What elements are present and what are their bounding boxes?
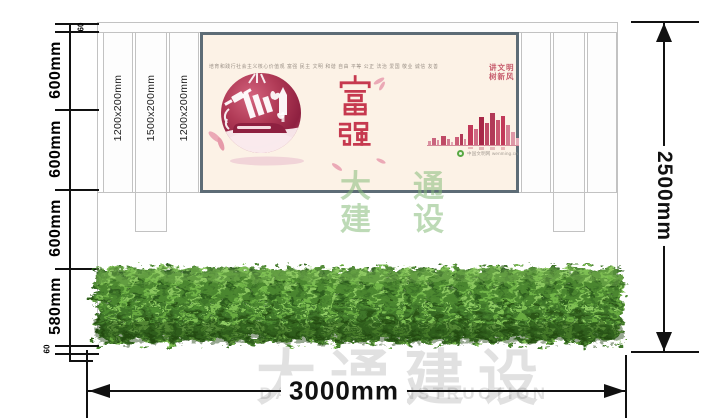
dimension-arrow-left — [89, 384, 110, 398]
segment-label-580: 580mm — [47, 277, 65, 335]
caption-text: 中国文明网 wenming.cn — [467, 151, 518, 157]
wall-bottom-line-right — [519, 192, 618, 193]
total-width-label: 3000mm — [281, 376, 407, 407]
fuqiang-characters — [331, 75, 387, 193]
dim-tick — [55, 109, 99, 111]
dim-tick — [55, 345, 99, 347]
panel-post-right-3 — [587, 32, 617, 193]
dimension-arrow-down — [656, 332, 672, 351]
dimension-arrow-up — [656, 23, 672, 42]
right-dim-bottom-tick — [631, 351, 699, 353]
hedge-image — [84, 258, 634, 356]
segment-label-600-1: 600mm — [47, 41, 65, 99]
core-values-text: 培育和践行社会主义核心价值观 富强 民主 文明 和谐 自由 平等 公正 法治 爱… — [209, 63, 439, 70]
dim-tick — [55, 353, 99, 355]
wall-bottom-line-left — [97, 192, 200, 193]
signage-design-drawing: { "dimensions": { "left_segments": ["60"… — [0, 0, 720, 420]
dim-tick — [55, 189, 99, 191]
panel-size-label-2: 1500x200mm — [145, 75, 157, 142]
poster-frame: 培育和践行社会主义核心价值观 富强 民主 文明 和谐 自由 平等 公正 法治 爱… — [200, 32, 519, 193]
slogan-text: 讲文明 树新风 — [489, 64, 515, 81]
dimension-arrow-right — [604, 384, 625, 398]
left-dimension-bend — [69, 360, 93, 362]
total-height-label: 2500mm — [650, 146, 678, 246]
bottom-dim-ext-left — [86, 350, 88, 418]
panel-post-right-2 — [553, 32, 585, 232]
left-dimension-line — [69, 23, 71, 362]
segment-label-600-2: 600mm — [47, 120, 65, 178]
panel-size-label-3: 1200x200mm — [178, 75, 190, 142]
skyline-graphic — [427, 105, 519, 151]
emblem-shadow — [227, 155, 307, 167]
caption-row: 中国文明网 wenming.cn — [457, 150, 518, 157]
segment-label-600-3: 600mm — [47, 199, 65, 257]
bottom-dim-ext-right — [625, 355, 627, 418]
segment-label-60-bottom: 60 — [43, 345, 52, 354]
panel-post-right-1 — [521, 32, 551, 193]
paper-cut-emblem — [219, 71, 305, 163]
segment-label-60-top: 60 — [77, 23, 86, 32]
pink-leaves-decoration — [205, 127, 231, 153]
wenming-logo-icon — [457, 150, 464, 157]
panel-size-label-1: 1200x200mm — [112, 75, 124, 142]
